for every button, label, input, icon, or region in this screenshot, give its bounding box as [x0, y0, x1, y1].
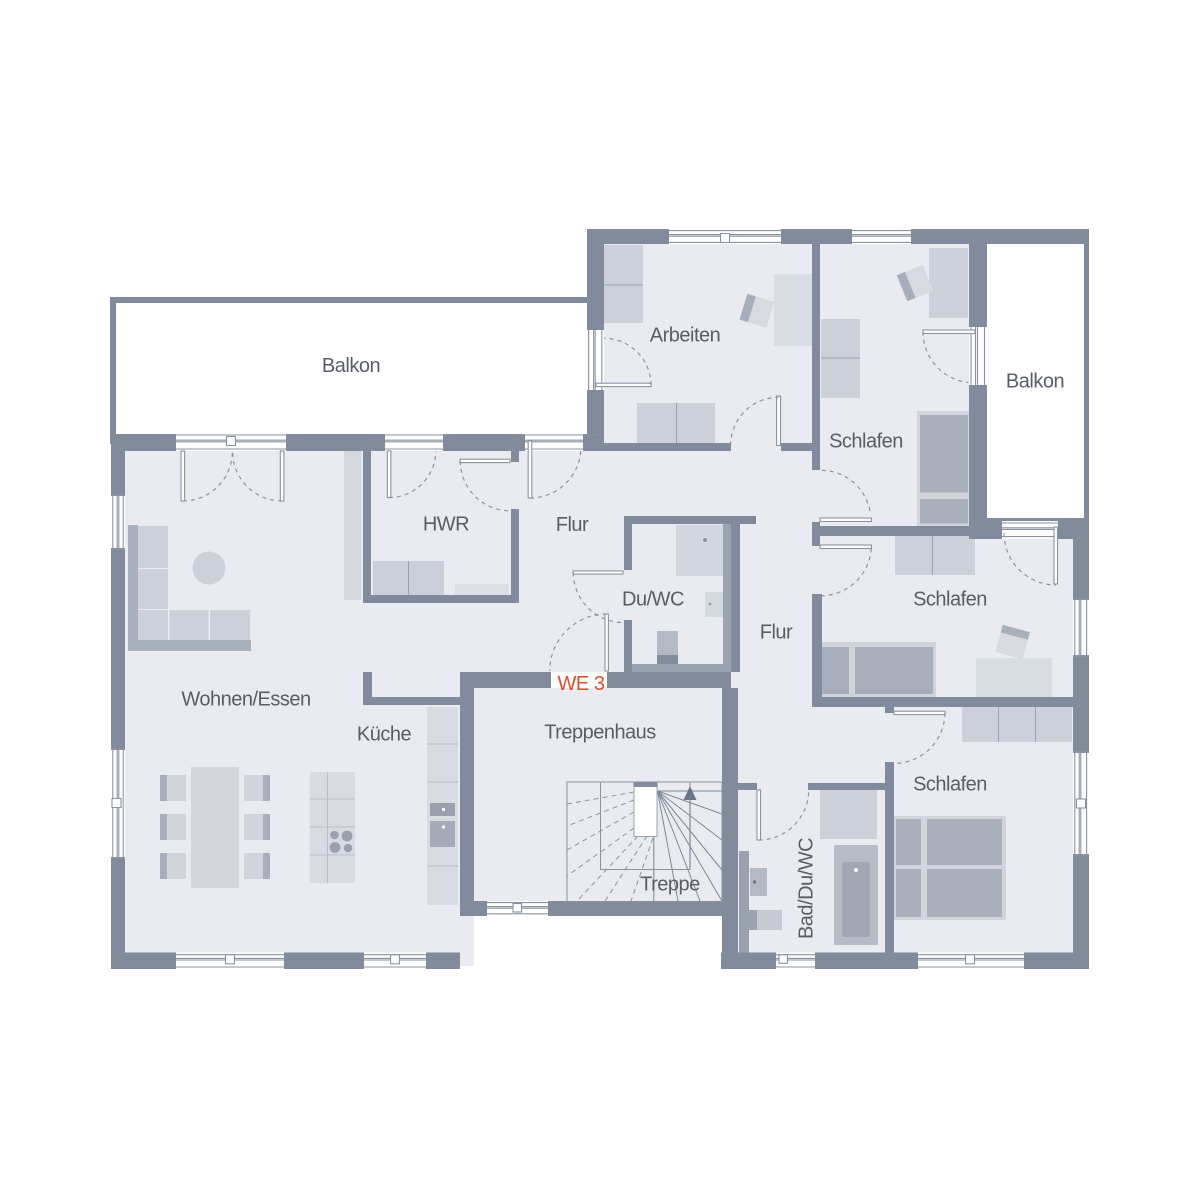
svg-text:Wohnen/Essen: Wohnen/Essen — [181, 689, 310, 711]
svg-text:Schlafen: Schlafen — [829, 431, 903, 453]
svg-text:Flur: Flur — [760, 622, 793, 644]
svg-text:Schlafen: Schlafen — [913, 774, 987, 796]
svg-text:Treppe: Treppe — [640, 874, 700, 896]
svg-text:Treppenhaus: Treppenhaus — [544, 722, 656, 744]
svg-text:Flur: Flur — [556, 514, 589, 536]
svg-text:WE 3: WE 3 — [558, 673, 605, 695]
svg-text:Du/WC: Du/WC — [622, 589, 684, 611]
svg-text:Küche: Küche — [357, 724, 412, 746]
svg-text:HWR: HWR — [423, 514, 469, 536]
svg-text:Bad/Du/WC: Bad/Du/WC — [796, 838, 818, 939]
svg-text:Balkon: Balkon — [322, 355, 380, 377]
svg-text:Balkon: Balkon — [1006, 371, 1064, 393]
svg-text:Schlafen: Schlafen — [913, 589, 987, 611]
svg-text:Arbeiten: Arbeiten — [650, 325, 721, 347]
